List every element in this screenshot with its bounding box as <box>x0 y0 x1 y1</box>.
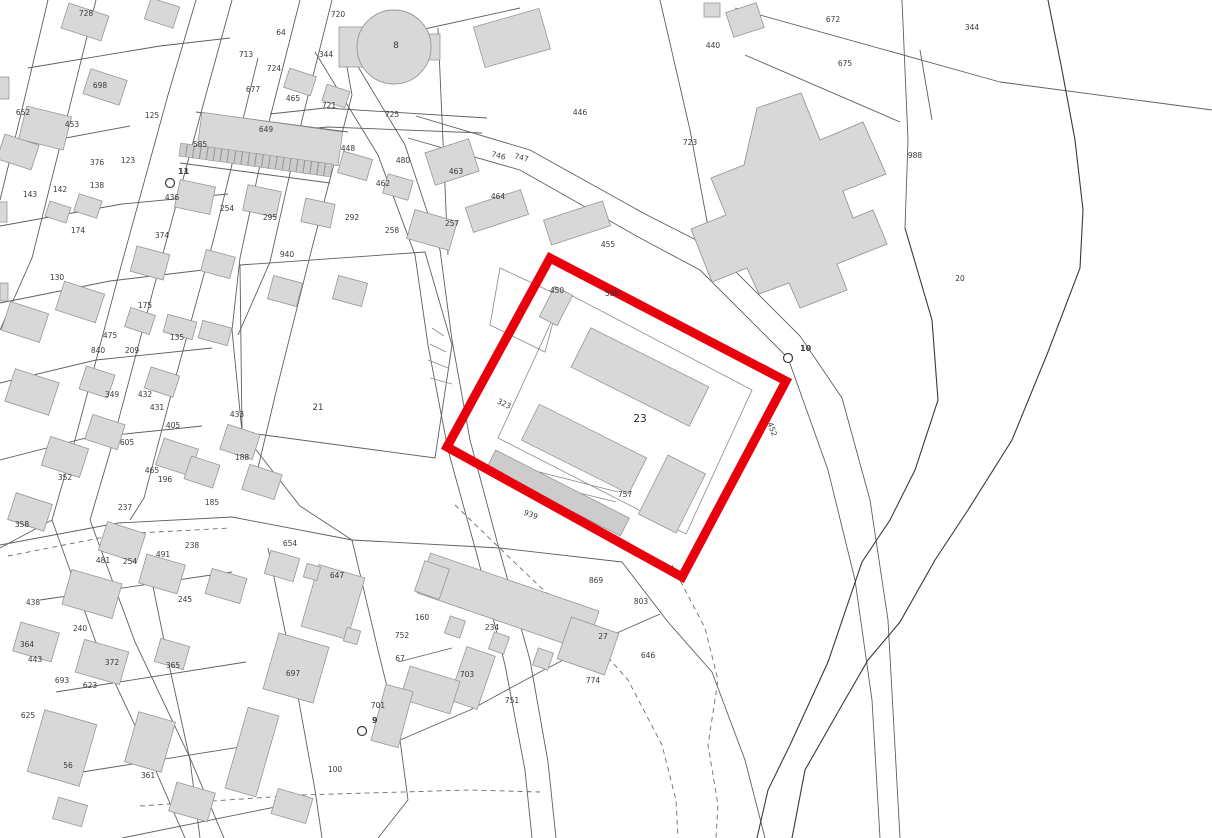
parcel-label: 452 <box>766 421 779 438</box>
parcel-label: 358 <box>15 520 30 529</box>
building <box>544 201 611 245</box>
parcel-label: 464 <box>491 192 506 201</box>
parcel-label: 443 <box>28 655 43 664</box>
parcel-label: 125 <box>145 111 160 120</box>
parcel-boundary <box>398 648 452 662</box>
parcel-label: 433 <box>230 410 245 419</box>
parcel-label: 840 <box>91 346 106 355</box>
building <box>139 554 186 594</box>
parcel-label: 237 <box>118 503 133 512</box>
parcel-label: 138 <box>90 181 105 190</box>
parcel-lines <box>0 0 1212 838</box>
parcel-boundary <box>0 268 220 303</box>
parcel-label: 465 <box>145 466 160 475</box>
parcel-boundary <box>432 328 444 336</box>
parcel-label: 751 <box>505 696 520 705</box>
parcel-label: 361 <box>141 771 156 780</box>
parcel-label: 432 <box>138 390 153 399</box>
cadastral-map: 7286472034471372467746572172564958544644… <box>0 0 1212 838</box>
building <box>41 437 88 478</box>
building <box>53 797 88 826</box>
parcel-label: 21 <box>313 403 324 413</box>
parcel-label: 774 <box>586 676 601 685</box>
parcel-boundary <box>735 8 1000 82</box>
parcel-label: 258 <box>385 226 400 235</box>
parcel-label: 67 <box>395 654 405 663</box>
parcel-label: 20 <box>955 274 965 283</box>
parcel-label: 64 <box>276 28 286 37</box>
parcel-label: 27 <box>598 632 608 641</box>
parcel-label: 8 <box>393 41 399 51</box>
parcel-label: 365 <box>166 661 181 670</box>
parcel-label: 747 <box>514 151 530 163</box>
highlight-parcel-label: 23 <box>633 413 646 425</box>
parcel-boundary <box>712 672 765 838</box>
parcel-label: 757 <box>618 490 633 499</box>
survey-marker-label: 11 <box>178 167 190 176</box>
building <box>301 198 335 228</box>
building <box>27 710 97 786</box>
building <box>445 616 466 638</box>
parcel-boundary <box>28 38 230 68</box>
parcel-label: 720 <box>331 10 346 19</box>
parcel-label: 605 <box>120 438 135 447</box>
building <box>264 550 299 581</box>
building <box>407 210 458 251</box>
building <box>144 0 179 28</box>
parcel-label: 174 <box>71 226 86 235</box>
parcel-boundary <box>0 0 96 330</box>
parcel-label: 703 <box>460 670 475 679</box>
building <box>332 276 367 307</box>
building <box>45 201 71 223</box>
parcel-label: 940 <box>280 250 295 259</box>
parcel-label: 238 <box>185 541 200 550</box>
parcel-label: 448 <box>341 144 356 153</box>
parcel-label: 440 <box>706 41 721 50</box>
parcel-label: 295 <box>263 213 278 222</box>
parcel-label: 405 <box>166 421 181 430</box>
stream-line <box>757 228 938 838</box>
parcel-boundary <box>430 344 446 352</box>
parcel-label: 649 <box>259 125 274 134</box>
parcel-label: 257 <box>445 219 460 228</box>
parcel-label: 746 <box>491 149 507 161</box>
building <box>489 632 510 654</box>
building <box>704 3 720 17</box>
parcel-label: 724 <box>267 64 282 73</box>
building <box>271 789 313 824</box>
parcel-label: 675 <box>838 59 853 68</box>
parcel-label: 698 <box>93 81 108 90</box>
parcel-label: 475 <box>103 331 118 340</box>
survey-marker-icon <box>358 727 367 736</box>
parcel-label: 175 <box>138 301 153 310</box>
parcel-label: 100 <box>328 765 343 774</box>
building <box>5 369 59 416</box>
parcel-label: 364 <box>20 640 35 649</box>
parcel-label: 349 <box>105 390 120 399</box>
parcel-label: 254 <box>220 204 235 213</box>
building <box>198 320 232 345</box>
parcel-label: 988 <box>908 151 923 160</box>
building <box>201 249 236 278</box>
parcel-boundary <box>622 562 712 672</box>
parcel-boundary <box>0 517 622 562</box>
parcel-label: 585 <box>193 140 208 149</box>
parcel-label: 245 <box>178 595 193 604</box>
parcel-label: 438 <box>26 598 41 607</box>
parcel-label: 491 <box>156 550 171 559</box>
survey-marker-label: 9 <box>372 716 378 725</box>
parcel-label: 721 <box>322 101 337 110</box>
building <box>125 307 156 334</box>
building <box>74 194 102 219</box>
parcel-label: 344 <box>965 23 980 32</box>
building <box>0 283 8 301</box>
building <box>1 302 48 343</box>
parcel-label: 455 <box>601 240 616 249</box>
building <box>726 3 764 38</box>
parcel-label: 143 <box>23 190 38 199</box>
parcel-label: 135 <box>170 333 185 342</box>
parcel-label: 234 <box>485 623 500 632</box>
parcel-label: 939 <box>523 508 540 521</box>
building <box>267 276 302 307</box>
parcel-boundary <box>428 360 448 368</box>
parcel-label: 672 <box>826 15 841 24</box>
parcel-boundary <box>430 378 452 384</box>
building <box>174 180 215 215</box>
parcel-label: 130 <box>50 273 65 282</box>
survey-marker-label: 10 <box>800 344 812 353</box>
building <box>425 139 479 186</box>
parcel-label: 693 <box>55 676 70 685</box>
parcel-label: 123 <box>121 156 136 165</box>
parcel-label: 436 <box>165 193 180 202</box>
parcel-label: 352 <box>58 473 73 482</box>
parcel-label: 446 <box>573 108 588 117</box>
parcel-label: 142 <box>53 185 68 194</box>
building <box>62 570 122 619</box>
building <box>571 328 709 426</box>
parcel-label: 344 <box>319 50 334 59</box>
parcel-label: 652 <box>16 108 31 117</box>
parcel-label: 431 <box>150 403 165 412</box>
parcel-label: 462 <box>376 179 391 188</box>
parcel-label: 376 <box>90 158 105 167</box>
building <box>338 151 373 180</box>
survey-marker-icon <box>166 179 175 188</box>
parcel-label: 752 <box>395 631 410 640</box>
parcel-label: 450 <box>550 286 565 295</box>
parcel-label: 803 <box>634 597 649 606</box>
cadastral-map-page: 7286472034471372467746572172564958544644… <box>0 0 1212 838</box>
parcel-label: 481 <box>96 556 111 565</box>
parcel-label: 697 <box>286 669 301 678</box>
parcel-label: 240 <box>73 624 88 633</box>
building <box>225 707 279 797</box>
parcel-label: 725 <box>385 110 400 119</box>
parcel-label: 728 <box>79 9 94 18</box>
parcel-label: 463 <box>449 167 464 176</box>
parcel-boundary <box>0 0 48 200</box>
building <box>263 633 329 703</box>
parcel-label: 713 <box>239 50 254 59</box>
parcel-label: 625 <box>21 711 36 720</box>
building <box>242 464 282 499</box>
parcel-label: 196 <box>158 475 173 484</box>
building <box>55 281 104 323</box>
parcel-label: 723 <box>683 138 698 147</box>
parcel-label: 623 <box>83 681 98 690</box>
parcel-label: 56 <box>63 761 73 770</box>
parcel-label: 647 <box>330 571 345 580</box>
parcel-boundary <box>1000 82 1212 110</box>
parcel-label: 292 <box>345 213 360 222</box>
parcel-label: 869 <box>589 576 604 585</box>
dashed-boundary <box>672 565 718 838</box>
building-school <box>691 93 887 308</box>
parcel-label: 188 <box>235 453 250 462</box>
survey-marker-icon <box>784 354 793 363</box>
parcel-label: 209 <box>125 346 140 355</box>
parcel-label: 323 <box>496 397 513 411</box>
parcel-label: 677 <box>246 85 261 94</box>
parcel-label: 374 <box>155 231 170 240</box>
parcel-label: 254 <box>123 557 138 566</box>
parcel-boundary <box>660 0 712 248</box>
parcel-boundary <box>902 0 908 228</box>
building <box>284 68 317 96</box>
parcel-label: 646 <box>641 651 656 660</box>
building <box>0 202 7 222</box>
parcel-label: 185 <box>205 498 220 507</box>
building <box>0 77 9 99</box>
parcel-label: 465 <box>286 94 301 103</box>
parcel-label: 480 <box>396 156 411 165</box>
parcel-label: 160 <box>415 613 430 622</box>
parcel-boundary <box>920 50 932 120</box>
stream-line <box>792 0 1083 838</box>
parcel-label: 453 <box>65 120 80 129</box>
building <box>205 569 247 604</box>
parcel-label: 654 <box>283 539 298 548</box>
parcel-label: 701 <box>371 701 386 710</box>
parcel-label: 372 <box>105 658 120 667</box>
building <box>474 8 551 67</box>
building <box>638 455 705 533</box>
building <box>75 639 129 684</box>
building <box>125 712 176 772</box>
parcel-label: 598 <box>605 289 620 298</box>
